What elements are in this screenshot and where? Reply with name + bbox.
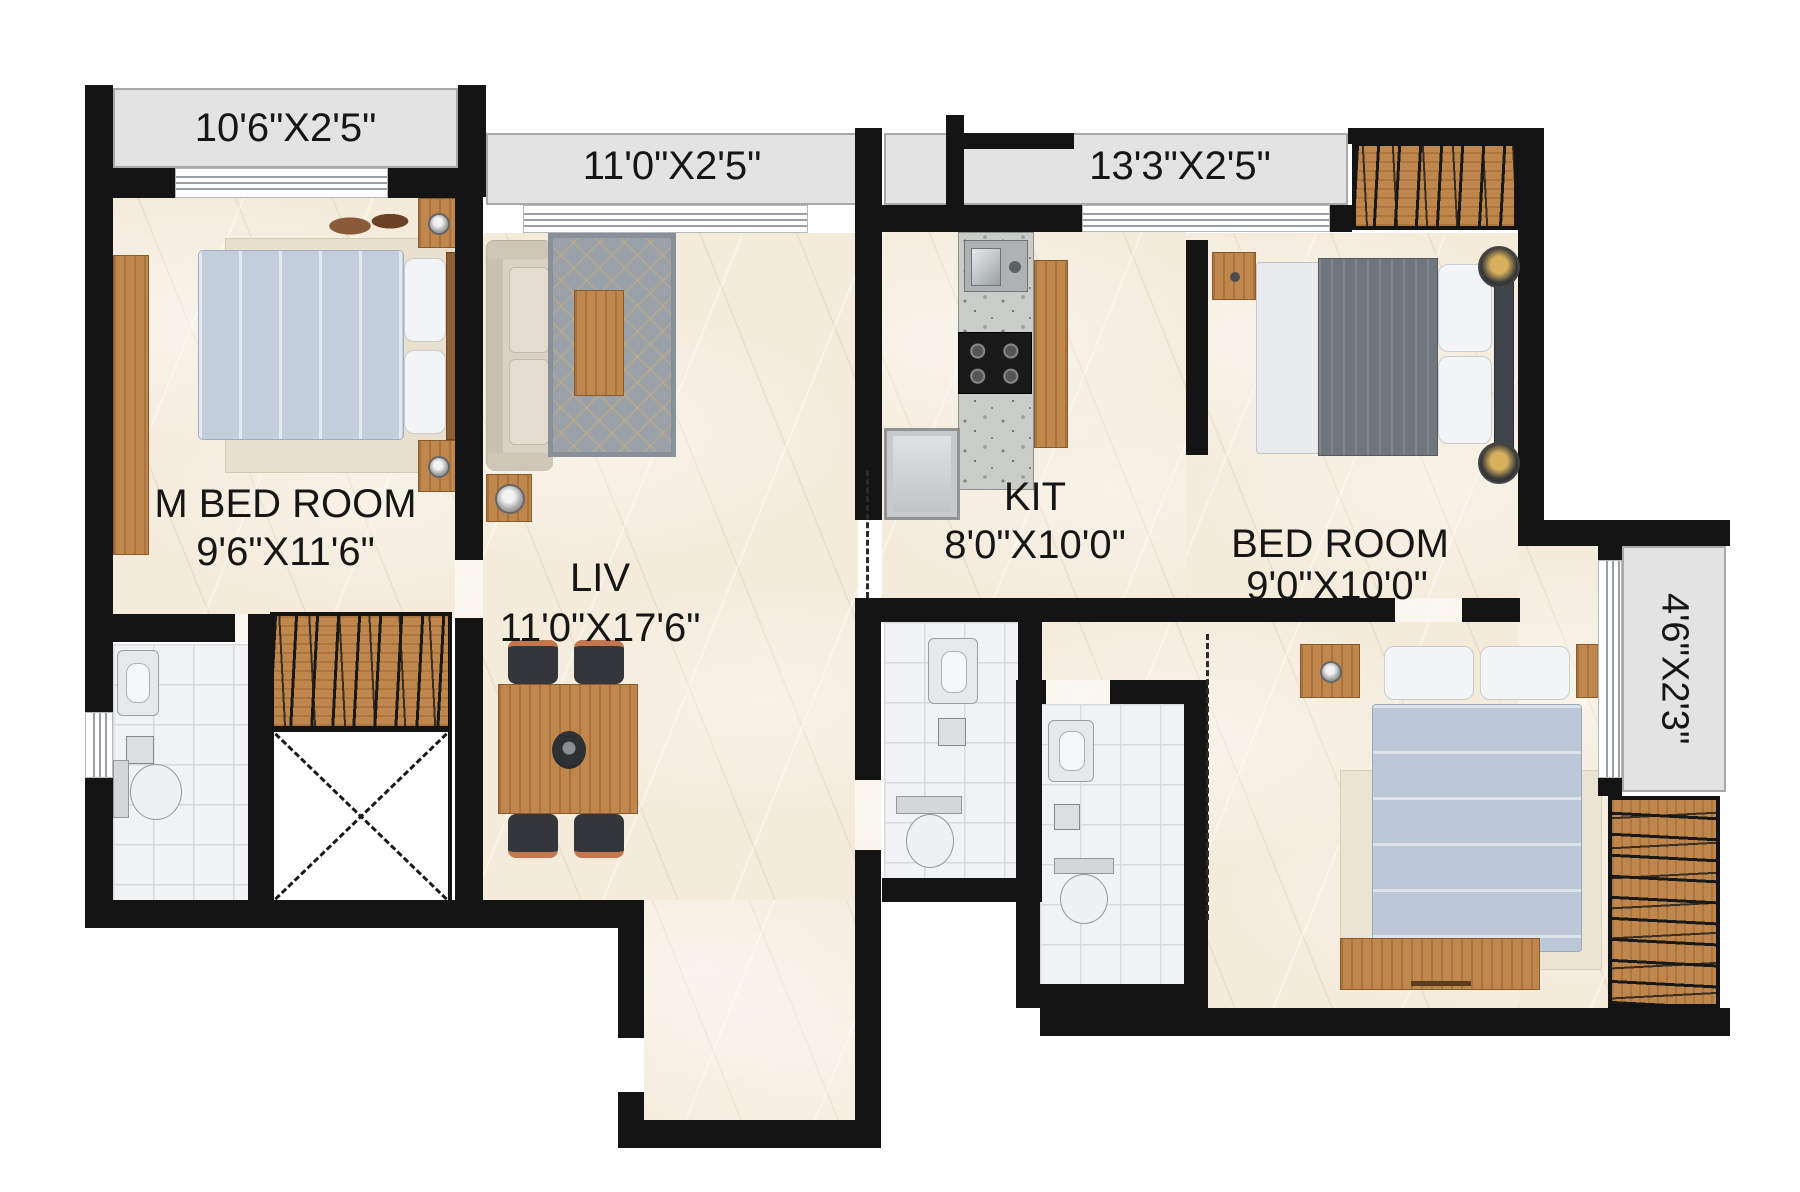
dining-chair [574,814,624,858]
wall-segment [1598,546,1622,560]
washbasin [1048,720,1094,782]
nightstand [1212,252,1256,300]
bedroom-size: 9'0"X10'0" [1170,562,1504,610]
coffee-table [574,290,624,396]
wall-segment [458,85,486,197]
wall-segment [855,622,881,780]
wall-segment [1330,205,1352,232]
balcony-top-left-size: 10'6"X2'5" [113,104,458,152]
toilet-tank [113,760,129,818]
bedroom-label: BED ROOM [1170,520,1510,568]
door-opening [1046,680,1110,704]
floor-plan: 10'6"X2'5" 11'0"X2'5" 13'3"X2'5" M BED R… [0,0,1800,1192]
lift-shaft [270,728,452,904]
wall-segment [618,1120,881,1148]
wall-segment [882,205,1082,232]
sofa-armrest [487,453,553,471]
bedroom-bed-sheet [1256,262,1320,454]
second-bed-pillow [1480,646,1570,700]
table-lamp [1320,661,1342,683]
window [1598,560,1622,778]
table-lamp [428,213,450,235]
window [85,712,113,778]
lamp-table [486,474,532,522]
second-bed-duvet [1372,704,1582,952]
wall-segment [1518,520,1730,546]
basin [941,651,967,693]
wall-segment [1016,984,1208,1008]
stove [958,332,1032,394]
kitchen-size: 8'0"X10'0" [880,521,1190,569]
door-opening [855,780,881,850]
window [175,168,388,198]
bedroom-pillow [1438,356,1492,444]
wall-segment [1016,680,1040,1008]
plant-decor [320,202,420,250]
wall-segment [618,928,644,1038]
master-bed [198,250,404,440]
dresser-handle [1411,981,1471,986]
basin [1059,731,1085,771]
balcony-top-right-size: 13'3"X2'5" [1010,142,1350,190]
sofa-cushion [509,359,549,445]
living-room-label: LIV [470,554,730,602]
basin [126,663,150,703]
wall-segment [1518,128,1544,546]
dresser [1340,938,1540,990]
master-bed-pillow [404,350,446,434]
kitchen-label: KIT [905,473,1165,521]
sofa-armrest [487,241,553,259]
wardrobe-hatch [270,612,452,730]
wall-segment [483,900,644,928]
toilet-tank [896,796,962,814]
ceiling-lamp [1478,246,1520,288]
wall-segment [1186,240,1208,455]
toilet-tank [1054,858,1114,874]
wall-segment [1040,1008,1730,1036]
wall-segment [113,168,175,198]
sofa-cushion [509,267,549,353]
table-lamp [428,456,450,478]
toilet-bowl [130,764,182,820]
nightstand [418,198,458,248]
toilet-bowl [1060,874,1108,924]
wall-segment [85,614,235,642]
drain-square [126,736,154,764]
living-room-size: 11'0"X17'6" [430,604,770,652]
toilet-bowl [906,814,954,868]
wall-segment [85,900,483,928]
master-bedroom-size: 9'6"X11'6" [113,528,458,576]
nightstand [1300,644,1360,698]
window [1082,205,1330,232]
knob [1230,272,1240,282]
sofa [486,240,552,470]
wall-segment [85,85,113,928]
floor-lamp [495,484,525,514]
wardrobe-hatch [1608,796,1720,1008]
wardrobe-hatch [1352,142,1518,230]
wall-segment [855,850,881,1122]
wall-segment [248,614,270,904]
kitchen-sink [964,240,1028,292]
dining-chair [508,814,558,858]
ceiling-lamp [1478,442,1520,484]
entry-corridor-floor [644,900,855,1122]
washbasin [928,638,978,704]
wall-segment [1348,128,1544,144]
bedroom-bed-duvet [1318,258,1438,456]
wall-segment [455,197,483,560]
window [523,205,808,233]
wall-segment [855,128,882,520]
balcony-right-side-size: 4'6"X2'3" [1626,550,1722,788]
sink-basin [971,248,1001,286]
open-boundary-dashed-line [1206,634,1209,920]
second-bed-pillow [1384,646,1474,700]
master-bed-pillow [404,258,446,342]
wall-segment [946,115,964,205]
sink-faucet [1009,261,1021,273]
wall-segment [1598,778,1622,796]
dining-table [498,684,638,814]
wall-segment [1184,680,1208,1008]
wall-segment [882,878,1042,902]
vase [552,731,586,769]
washbasin [117,650,159,716]
drain-square [1054,804,1080,830]
sofa-back [487,241,503,471]
open-boundary-dashed-line [866,470,869,598]
wall-segment [388,168,458,198]
wall-segment [455,618,483,928]
balcony-top-center-size: 11'0"X2'5" [486,142,858,190]
drain-square [938,718,966,746]
master-bedroom-label: M BED ROOM [113,480,458,528]
kitchen-cabinet [1034,260,1068,448]
